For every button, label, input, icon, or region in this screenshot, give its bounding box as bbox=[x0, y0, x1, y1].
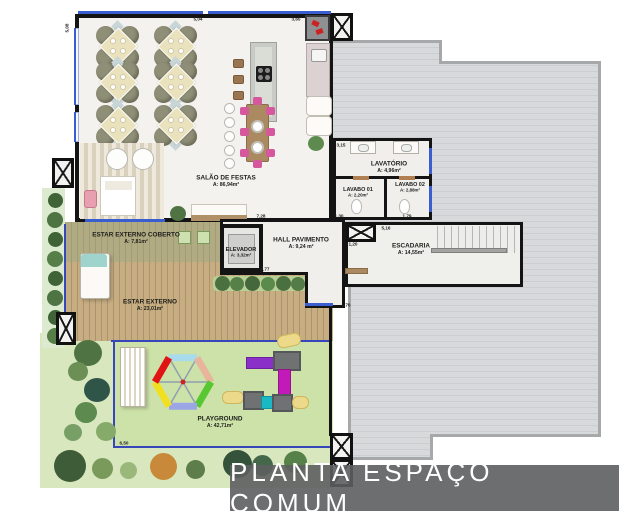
garden-shrub-icon bbox=[47, 212, 63, 228]
label-lavatorio: LAVATÓRIOA: 4,96m² bbox=[371, 160, 407, 174]
pouf-chair bbox=[132, 148, 154, 170]
round-chair bbox=[224, 131, 235, 142]
hedge-shrub-icon bbox=[291, 277, 305, 291]
dim-label: 3,65 bbox=[291, 16, 300, 21]
round-chair bbox=[224, 158, 235, 169]
carousel-hexagon-icon bbox=[150, 352, 216, 414]
round-chair bbox=[224, 117, 235, 128]
pink-chair bbox=[253, 160, 262, 168]
door-leaf bbox=[399, 176, 415, 180]
wc-window-glass-1 bbox=[429, 148, 432, 174]
hedge-shrub-icon bbox=[261, 277, 275, 291]
garden-shrub-icon bbox=[47, 251, 63, 267]
pillar-x-icon bbox=[52, 158, 74, 188]
dim-label: 1,79 bbox=[402, 213, 411, 218]
pink-chair bbox=[240, 107, 249, 115]
garden-tree-icon bbox=[120, 462, 137, 479]
wc-window-glass-2 bbox=[429, 186, 432, 212]
round-chair bbox=[224, 145, 235, 156]
party-table bbox=[154, 60, 198, 104]
party-table bbox=[96, 103, 140, 147]
hedge-shrub-icon bbox=[230, 277, 244, 291]
hedge-shrub-icon bbox=[276, 276, 291, 291]
garden-tree-icon bbox=[150, 453, 177, 480]
slide-purple-icon bbox=[246, 357, 275, 369]
lounge-mattress bbox=[306, 96, 332, 116]
label-salao: SALÃO DE FESTASA: 86,94m² bbox=[196, 174, 256, 188]
garden-bush-icon bbox=[68, 362, 88, 381]
hall-join-patch bbox=[308, 269, 342, 278]
barbecue-grill-icon bbox=[305, 15, 330, 41]
console-shelf bbox=[345, 268, 368, 274]
dim-label: 5,08 bbox=[64, 23, 69, 32]
label-lavabo01: LAVABO 01A: 2,20m² bbox=[343, 186, 373, 198]
pink-chair bbox=[266, 149, 275, 157]
potted-plant-icon bbox=[178, 231, 191, 244]
dim-label: 6,50 bbox=[119, 440, 128, 445]
bar-stool bbox=[233, 91, 244, 100]
garden-bush-icon bbox=[96, 422, 116, 441]
accent-chair bbox=[84, 190, 97, 208]
stair-handrail bbox=[431, 248, 507, 253]
dim-label: 3,15 bbox=[336, 142, 345, 147]
glass-door-deck bbox=[85, 219, 165, 222]
boundary-line-playground-bottom bbox=[113, 446, 331, 448]
window-left-2-glass bbox=[74, 112, 76, 142]
pink-chair bbox=[266, 128, 275, 136]
party-table bbox=[96, 60, 140, 104]
cooktop-icon bbox=[256, 66, 272, 82]
potted-plant-icon bbox=[197, 231, 210, 244]
window-left-1-glass bbox=[74, 28, 76, 105]
garden-bush-icon bbox=[84, 378, 110, 402]
party-table bbox=[154, 103, 198, 147]
hedge-shrub-icon bbox=[245, 276, 260, 291]
garden-tree-icon bbox=[186, 460, 205, 479]
toilet-icon bbox=[399, 199, 410, 214]
play-platform bbox=[273, 351, 301, 371]
garden-shrub-icon bbox=[48, 193, 63, 208]
slide-yellow-icon bbox=[292, 396, 309, 409]
playground-bench bbox=[120, 347, 146, 407]
dim-label: 5,16 bbox=[381, 225, 390, 230]
playground-right-wall bbox=[329, 308, 332, 436]
wc-divider-wall-h bbox=[333, 176, 432, 179]
dim-label: 1,30 bbox=[334, 213, 343, 218]
garden-shrub-icon bbox=[48, 232, 63, 247]
dim-label: 7,28 bbox=[256, 213, 265, 218]
dim-label: 5,04 bbox=[193, 16, 202, 21]
label-elevador: ELEVADORA: 3,32m² bbox=[226, 246, 257, 258]
garden-bush-icon bbox=[64, 424, 82, 441]
dim-label: 1,70 bbox=[341, 302, 350, 307]
indoor-plant-icon bbox=[170, 206, 186, 221]
pillar-x-icon bbox=[331, 13, 353, 41]
label-escadaria: ESCADARIAA: 14,55m² bbox=[392, 242, 430, 256]
title-bar: PLANTA ESPAÇO COMUM bbox=[230, 465, 619, 511]
play-platform bbox=[272, 394, 293, 412]
floor-plan-canvas: SALÃO DE FESTASA: 86,94m² LAVATÓRIOA: 4,… bbox=[0, 0, 619, 523]
door-leaf bbox=[353, 176, 369, 180]
label-estar-externo: ESTAR EXTERNOA: 23,01m² bbox=[123, 298, 177, 312]
bar-stool bbox=[233, 59, 244, 68]
lounge-mattress bbox=[306, 116, 332, 136]
garden-shrub-icon bbox=[47, 290, 63, 306]
label-lavabo02: LAVABO 02A: 2,88m² bbox=[395, 181, 425, 193]
pillar-x-icon bbox=[56, 312, 76, 345]
dim-label: 1,20 bbox=[348, 241, 357, 246]
label-hall: HALL PAVIMENTOA: 9,24 m² bbox=[273, 236, 329, 250]
garden-tree-icon bbox=[92, 458, 113, 479]
pillar-x-icon bbox=[346, 223, 376, 242]
label-estar-coberto: ESTAR EXTERNO COBERTOA: 7,81m² bbox=[92, 231, 180, 245]
toilet-icon bbox=[351, 199, 362, 214]
label-playground: PLAYGROUNDA: 42,71m² bbox=[198, 415, 243, 429]
pink-chair bbox=[266, 107, 275, 115]
counter-sink bbox=[306, 43, 330, 97]
deck-lounger bbox=[80, 253, 110, 299]
dim-label: 1,77 bbox=[260, 266, 269, 271]
indoor-plant-icon bbox=[308, 136, 324, 151]
vanity-sink bbox=[350, 141, 376, 154]
page-title: PLANTA ESPAÇO COMUM bbox=[230, 457, 619, 519]
slide-magenta-icon bbox=[278, 369, 291, 396]
window-glass-top-right bbox=[208, 11, 331, 14]
daybed bbox=[100, 176, 136, 216]
pillar-x-icon bbox=[330, 433, 353, 460]
slide-yellow-icon bbox=[222, 391, 244, 404]
vanity-sink bbox=[393, 141, 419, 154]
garden-shrub-icon bbox=[48, 271, 63, 286]
hedge-shrub-icon bbox=[215, 276, 230, 291]
round-chair bbox=[224, 103, 235, 114]
pouf-chair bbox=[106, 148, 128, 170]
garden-bush-icon bbox=[75, 402, 97, 423]
pink-chair bbox=[240, 149, 249, 157]
hall-door-glass bbox=[305, 303, 333, 306]
pink-chair bbox=[240, 128, 249, 136]
window-glass-top-left bbox=[78, 11, 203, 14]
wc-divider-wall-v bbox=[384, 179, 387, 220]
garden-tree-icon bbox=[54, 450, 86, 482]
bar-stool bbox=[233, 75, 244, 84]
pink-chair bbox=[253, 97, 262, 105]
